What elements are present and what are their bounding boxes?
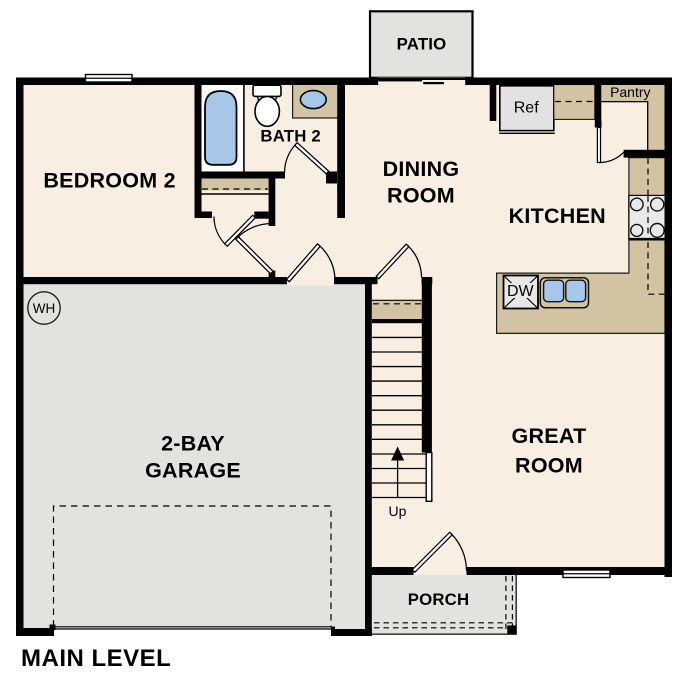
svg-text:BATH 2: BATH 2 [260,127,321,146]
svg-text:DW: DW [507,283,535,300]
svg-text:GARAGE: GARAGE [145,459,241,483]
svg-text:ROOM: ROOM [387,184,455,208]
svg-text:Pantry: Pantry [610,84,650,100]
svg-text:PORCH: PORCH [408,590,470,609]
svg-text:PATIO: PATIO [397,34,447,53]
svg-text:Up: Up [389,503,407,519]
svg-text:KITCHEN: KITCHEN [509,204,606,228]
svg-text:2-BAY: 2-BAY [161,432,225,456]
svg-text:BEDROOM 2: BEDROOM 2 [43,169,175,193]
svg-text:ROOM: ROOM [515,453,583,477]
svg-text:Ref: Ref [514,100,539,117]
svg-text:WH: WH [33,301,56,316]
svg-text:GREAT: GREAT [512,424,587,448]
svg-text:MAIN LEVEL: MAIN LEVEL [21,645,171,672]
svg-text:DINING: DINING [383,157,460,181]
